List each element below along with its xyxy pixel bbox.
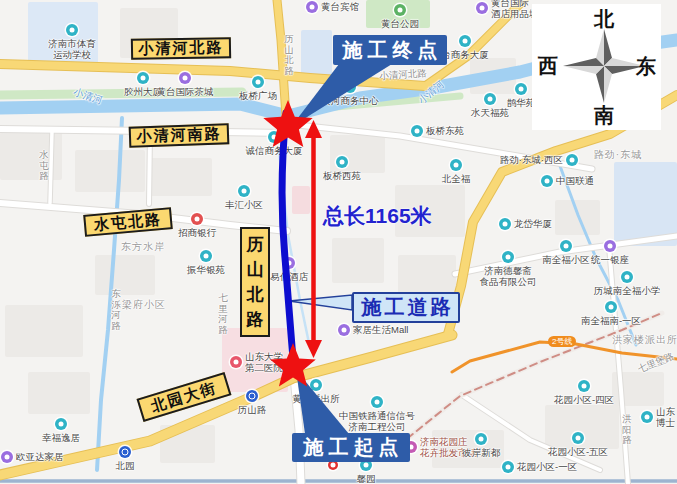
construction-point-star-icon bbox=[270, 343, 316, 386]
compass-south-label: 南 bbox=[594, 102, 614, 129]
callout-tail bbox=[289, 295, 352, 310]
arrow-head-down-icon bbox=[305, 340, 322, 358]
compass-east-label: 东 bbox=[636, 53, 656, 80]
arrow-head-up-icon bbox=[305, 120, 322, 138]
construction-start-callout: 施工起点 bbox=[292, 433, 410, 462]
construction-route-line bbox=[282, 113, 294, 372]
construction-point-star-icon bbox=[263, 100, 312, 147]
construction-road-callout: 施工道路 bbox=[352, 292, 460, 323]
compass-north-label: 北 bbox=[594, 6, 614, 33]
total-length-label: 总长1165米 bbox=[323, 202, 432, 230]
compass: 北 南 西 东 bbox=[532, 4, 661, 130]
map-canvas[interactable]: 历山北路小清河北路水屯路东泺河路七里河路洪阳路七里堡路小清河小清河路劲·东城梁府… bbox=[0, 0, 677, 484]
construction-end-callout: 施工终点 bbox=[333, 35, 447, 65]
compass-west-label: 西 bbox=[538, 53, 558, 80]
